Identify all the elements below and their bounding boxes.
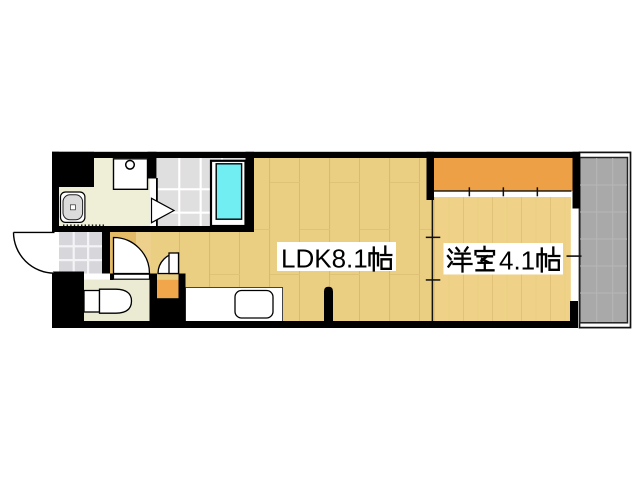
svg-text:4.1: 4.1	[499, 245, 535, 275]
svg-text:LDK8.1: LDK8.1	[281, 243, 368, 273]
